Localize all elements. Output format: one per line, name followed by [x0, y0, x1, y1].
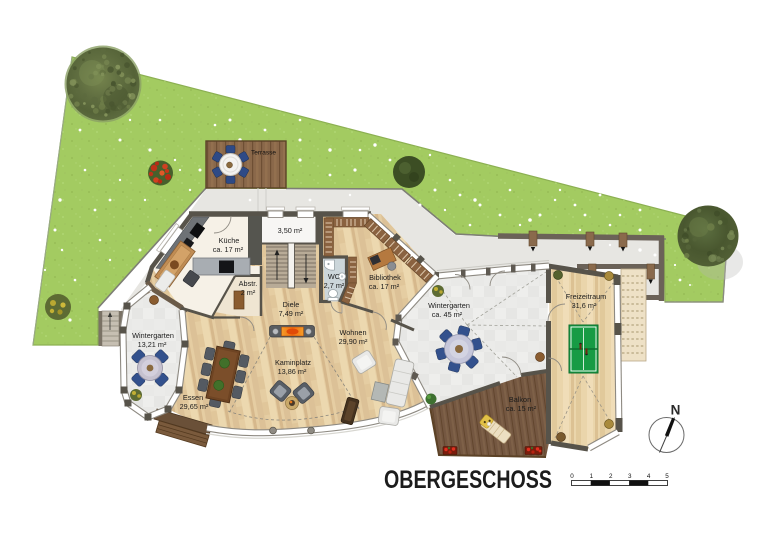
- svg-text:13,86 m²: 13,86 m²: [278, 367, 307, 376]
- svg-text:Essen: Essen: [183, 393, 203, 402]
- svg-text:2,7 m²: 2,7 m²: [324, 281, 345, 290]
- svg-text:Wintergarten: Wintergarten: [132, 331, 174, 340]
- svg-text:Wintergarten: Wintergarten: [428, 301, 470, 310]
- svg-text:2 m²: 2 m²: [241, 288, 256, 297]
- svg-text:Abstr.: Abstr.: [239, 279, 258, 288]
- svg-text:5: 5: [665, 473, 669, 480]
- svg-text:13,21 m²: 13,21 m²: [138, 340, 167, 349]
- svg-text:2: 2: [609, 473, 613, 480]
- svg-text:ca. 45 m²: ca. 45 m²: [432, 310, 463, 319]
- svg-text:29,65 m²: 29,65 m²: [180, 402, 209, 411]
- svg-text:OBERGESCHOSS: OBERGESCHOSS: [384, 466, 552, 494]
- svg-text:N: N: [671, 403, 681, 418]
- svg-text:ca. 15 m²: ca. 15 m²: [506, 404, 537, 413]
- svg-text:Diele: Diele: [283, 300, 300, 309]
- svg-text:3: 3: [628, 473, 632, 480]
- svg-text:0: 0: [570, 473, 574, 480]
- svg-text:1: 1: [590, 473, 594, 480]
- svg-text:ca. 17 m²: ca. 17 m²: [213, 245, 244, 254]
- svg-text:WC: WC: [328, 272, 340, 281]
- svg-text:29,90 m²: 29,90 m²: [339, 337, 368, 346]
- svg-text:Wohnen: Wohnen: [339, 328, 366, 337]
- svg-text:7,49 m²: 7,49 m²: [279, 309, 304, 318]
- svg-text:Küche: Küche: [219, 236, 240, 245]
- svg-text:4: 4: [647, 473, 651, 480]
- svg-text:Kaminplatz: Kaminplatz: [275, 358, 311, 367]
- svg-text:3,50 m²: 3,50 m²: [278, 226, 303, 235]
- svg-text:Freizeitraum: Freizeitraum: [566, 292, 607, 301]
- svg-text:Balkon: Balkon: [509, 395, 531, 404]
- svg-text:Bibliothek: Bibliothek: [369, 273, 401, 282]
- svg-text:Terrasse: Terrasse: [251, 150, 276, 157]
- svg-text:31,6 m²: 31,6 m²: [572, 301, 597, 310]
- svg-text:ca. 17 m²: ca. 17 m²: [369, 282, 400, 291]
